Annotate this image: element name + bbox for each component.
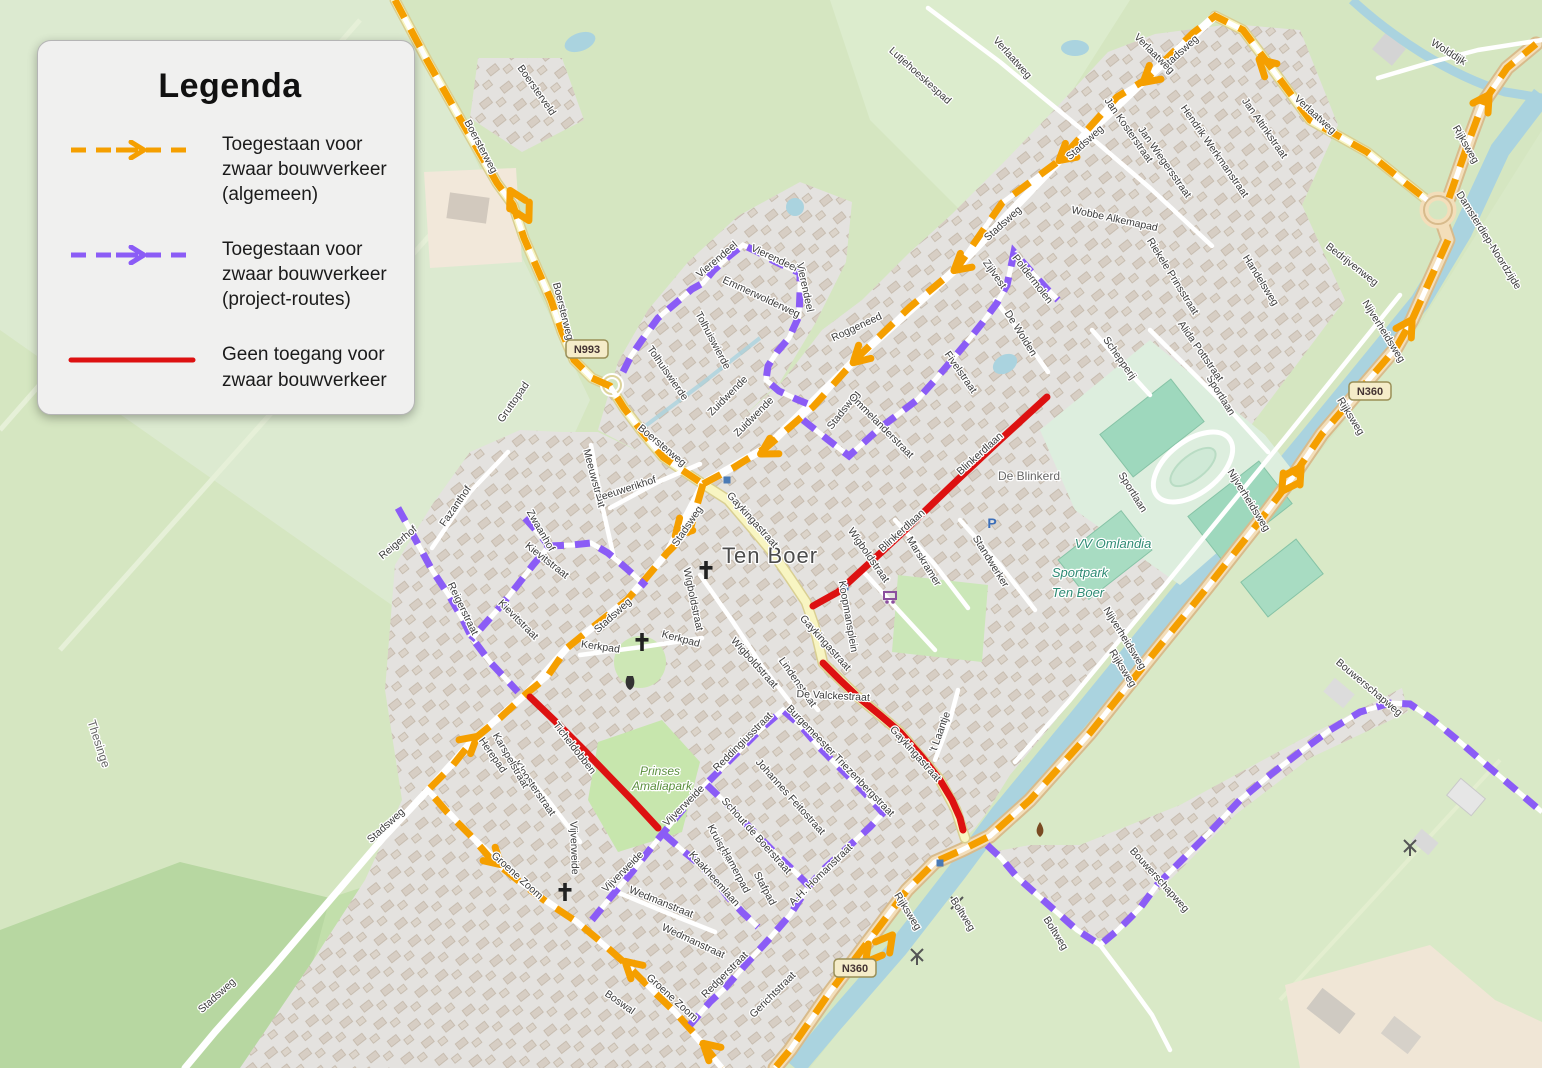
svg-text:N360: N360 (1357, 386, 1383, 398)
svg-text:P: P (987, 515, 996, 531)
legend-title: Legenda (68, 67, 392, 106)
sport-label: Sportpark (1052, 565, 1110, 580)
legend-item-label: Toegestaan voor zwaar bouwverkeer (algem… (196, 132, 392, 207)
map-page: BoersterwegStadsweg - Verlaatweg (noord)… (0, 0, 1542, 1068)
bus-icon (724, 477, 731, 484)
legend-item: Toegestaan voor zwaar bouwverkeer (algem… (68, 132, 392, 207)
legend: Legenda Toegestaan voor zwaar bouwverkee… (37, 40, 415, 415)
park-label: Amaliapark (631, 779, 693, 793)
legend-sample-dashed-arrow (68, 140, 196, 165)
legend-item-label: Toegestaan voor zwaar bouwverkeer (proje… (196, 237, 392, 312)
bus-icon (937, 860, 944, 867)
area-label: De Blinkerd (998, 469, 1060, 483)
street-label: Vijverweide (567, 821, 581, 875)
svg-text:N993: N993 (574, 344, 600, 356)
legend-sample-dashed-arrow (68, 245, 196, 270)
road-badge: N993 (566, 340, 608, 358)
sport-label: VV Omlandia (1075, 536, 1152, 551)
legend-sample-solid-line (68, 350, 196, 375)
legend-item: Toegestaan voor zwaar bouwverkeer (proje… (68, 237, 392, 312)
road-badge: N360 (1349, 382, 1391, 400)
road-badge: N360 (834, 959, 876, 977)
parking-icon: P (987, 515, 996, 531)
park-label: Prinses (640, 764, 680, 778)
legend-item: Geen toegang voor zwaar bouwverkeer (68, 342, 392, 392)
svg-text:N360: N360 (842, 963, 868, 975)
legend-item-label: Geen toegang voor zwaar bouwverkeer (196, 342, 392, 392)
sport-label: Ten Boer (1052, 585, 1105, 600)
legend-items: Toegestaan voor zwaar bouwverkeer (algem… (68, 132, 392, 393)
